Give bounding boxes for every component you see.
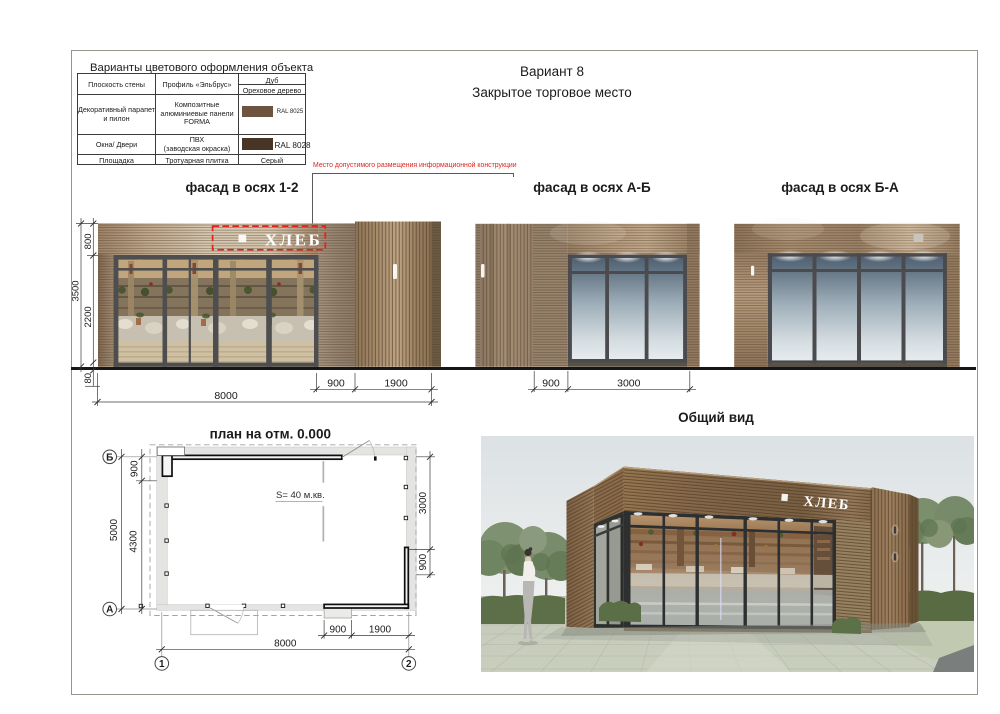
svg-text:5000: 5000 (109, 518, 120, 541)
svg-text:2200: 2200 (83, 306, 94, 327)
svg-text:S= 40 м.кв.: S= 40 м.кв. (276, 490, 325, 501)
svg-text:Б: Б (106, 452, 113, 463)
svg-text:2: 2 (406, 659, 412, 670)
svg-text:8000: 8000 (214, 390, 238, 402)
svg-text:900: 900 (418, 553, 429, 570)
svg-text:1: 1 (159, 659, 165, 670)
svg-text:1900: 1900 (369, 625, 392, 636)
svg-text:4300: 4300 (129, 530, 140, 553)
svg-text:900: 900 (327, 378, 345, 390)
svg-text:1900: 1900 (384, 378, 408, 390)
svg-text:ХЛЕБ: ХЛЕБ (265, 230, 323, 249)
svg-text:8000: 8000 (274, 638, 297, 649)
svg-text:900: 900 (542, 378, 560, 390)
svg-text:3500: 3500 (71, 280, 82, 301)
svg-text:800: 800 (83, 233, 94, 249)
svg-text:900: 900 (130, 460, 141, 477)
svg-text:3000: 3000 (418, 491, 429, 514)
svg-text:900: 900 (330, 625, 347, 636)
svg-text:план на отм. 0.000: план на отм. 0.000 (210, 427, 331, 442)
svg-text:3000: 3000 (617, 378, 641, 390)
svg-text:80: 80 (83, 373, 94, 384)
svg-text:А: А (106, 605, 113, 616)
